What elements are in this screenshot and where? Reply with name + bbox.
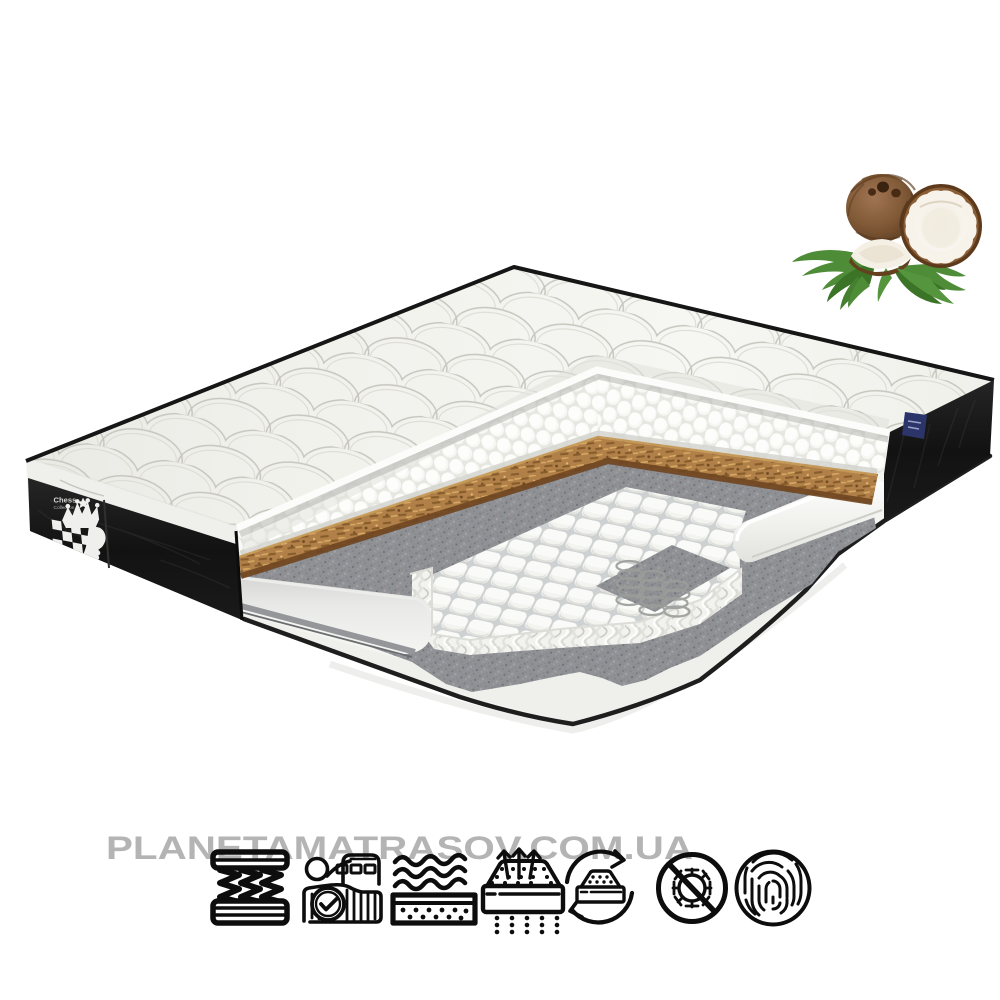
svg-text:Collection: Collection (54, 505, 75, 511)
svg-text:Chess: Chess (54, 495, 77, 504)
